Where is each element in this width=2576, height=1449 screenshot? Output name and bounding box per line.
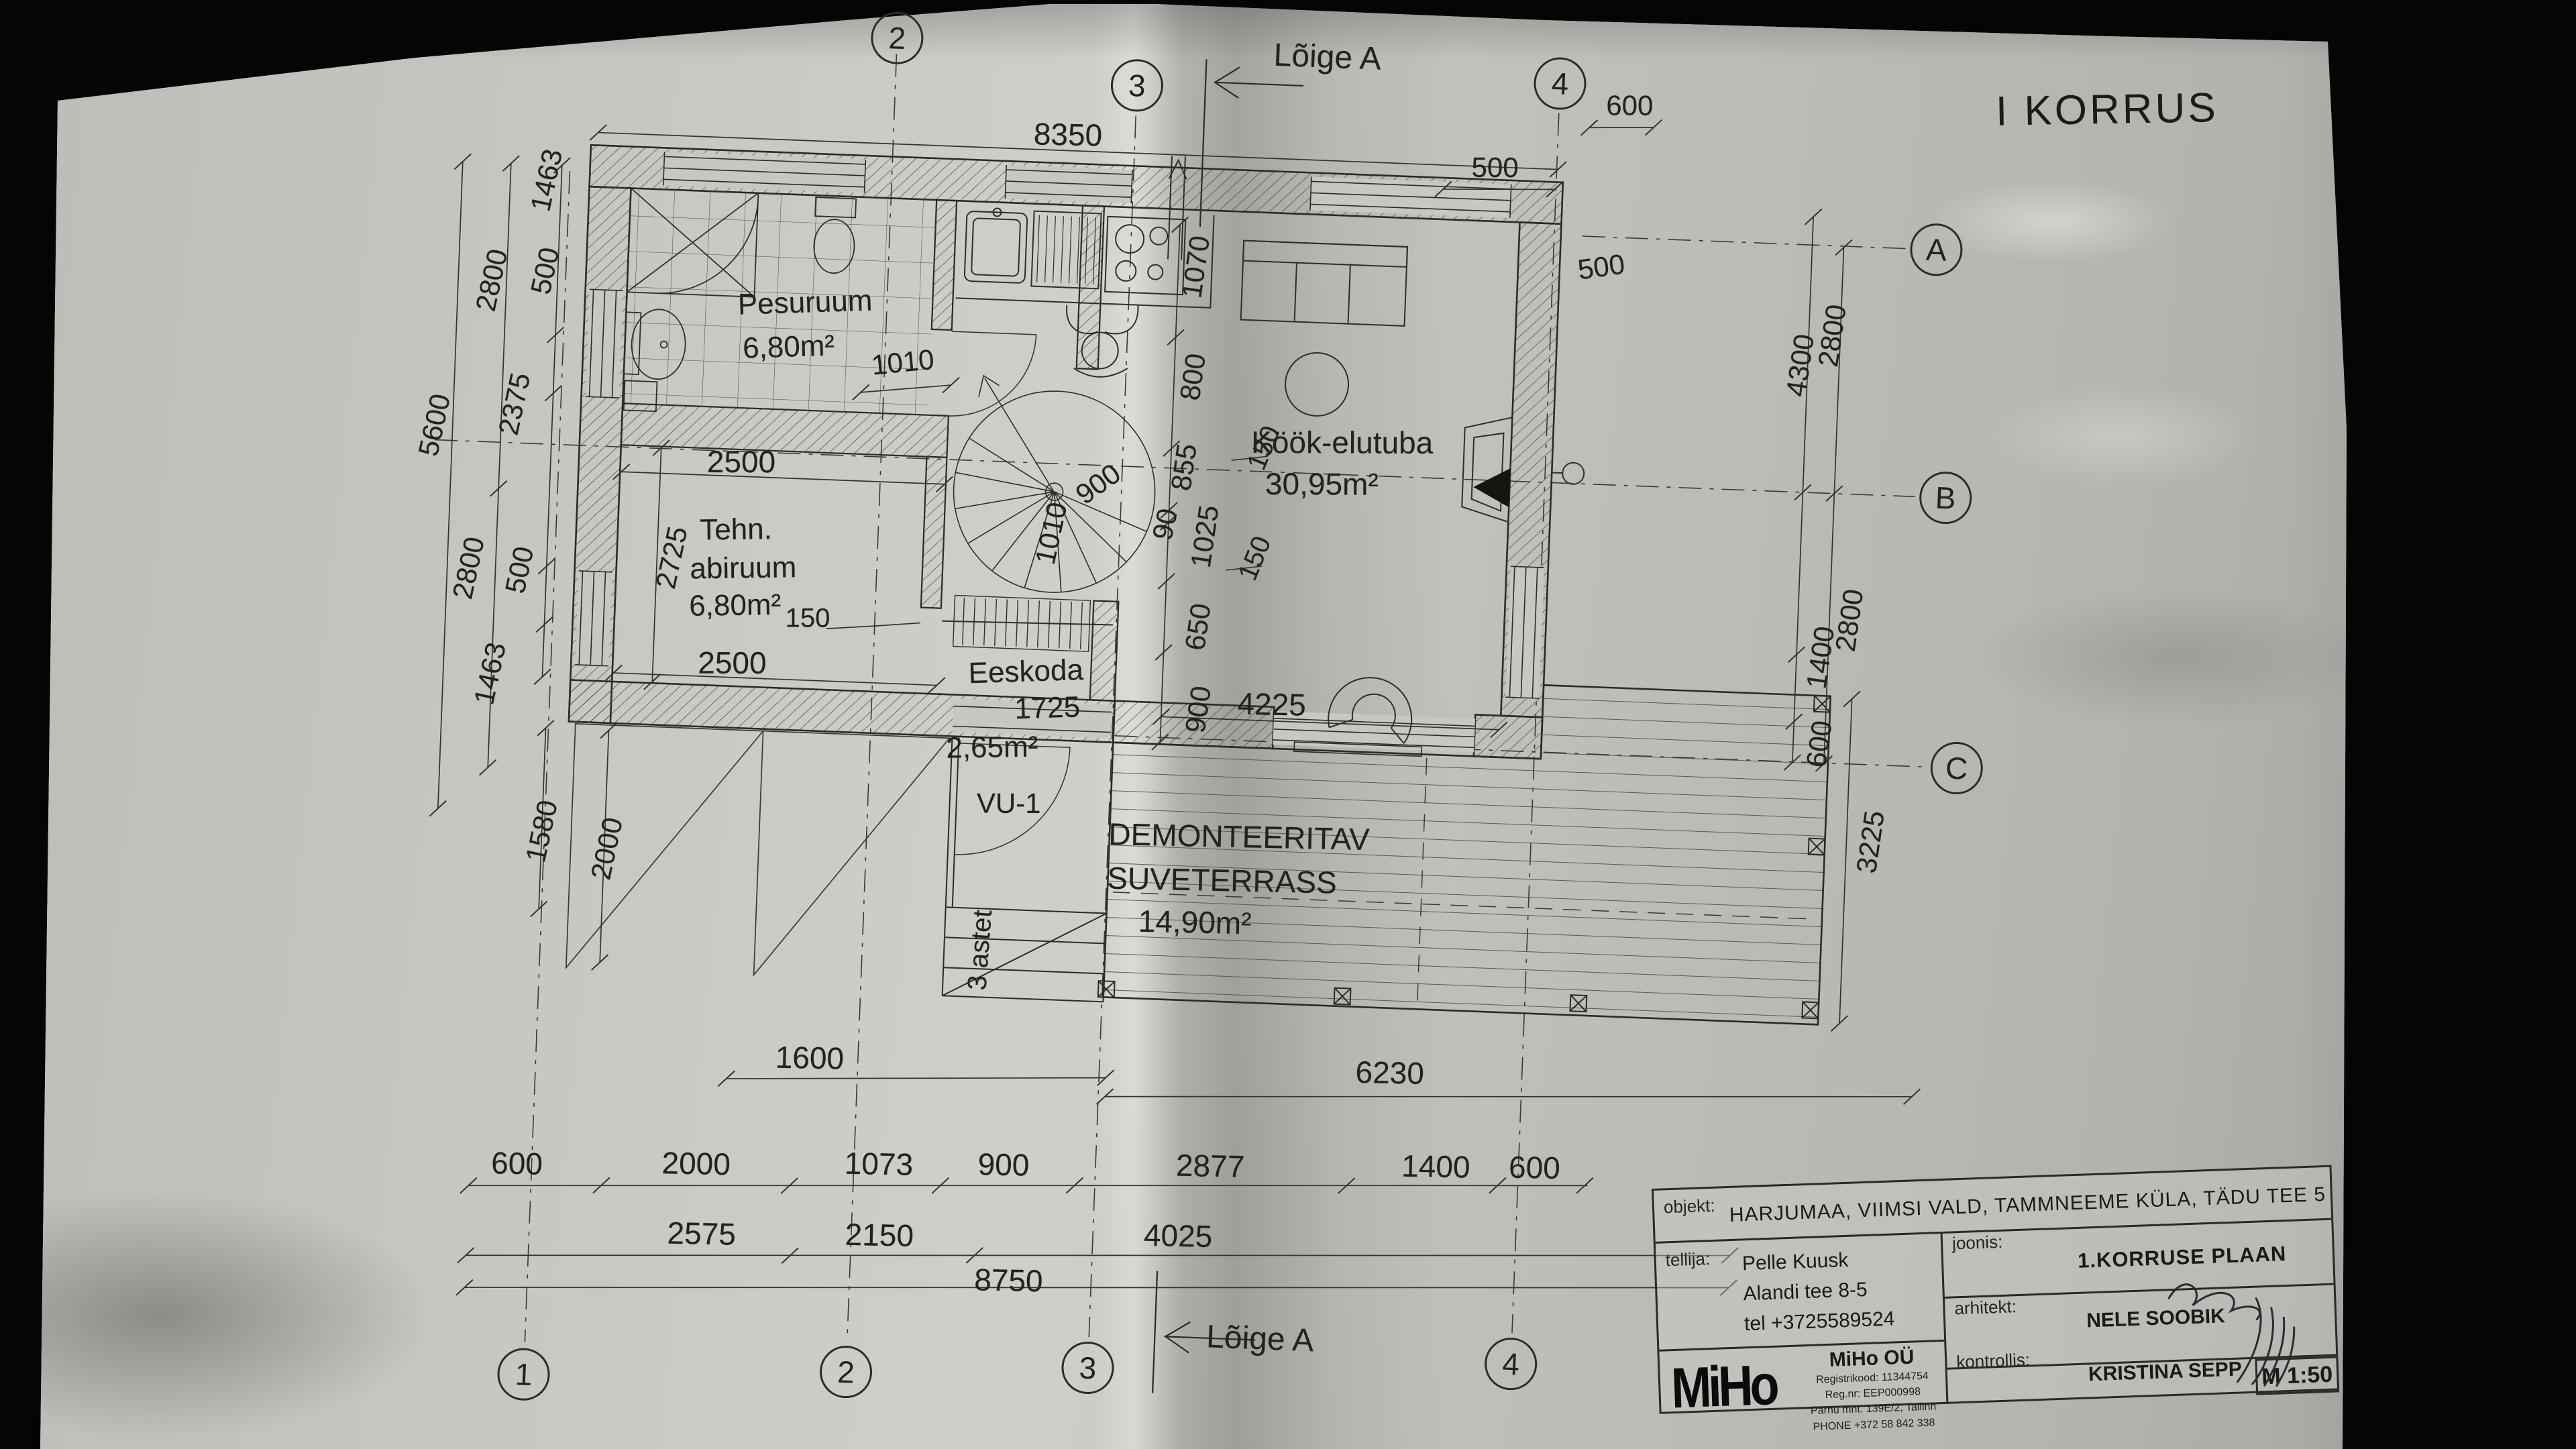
- room-label: Pesuruum: [737, 284, 873, 321]
- dimension-label: 4225: [1237, 686, 1306, 723]
- dimension-label: 600: [1509, 1148, 1561, 1186]
- dimension-label: 150: [786, 603, 830, 633]
- drawing-info-cell: joonis: 1.KORRUSE PLAAN arhitekt: NELE S…: [1943, 1220, 2338, 1404]
- objekt-label: objekt:: [1654, 1188, 1725, 1218]
- page-title: I KORRUS: [1995, 84, 2218, 136]
- dimension-label: 600: [1800, 718, 1839, 769]
- dimension-label: 800: [1174, 352, 1213, 402]
- room-label: VU-1: [977, 788, 1041, 820]
- stove: [1105, 217, 1185, 294]
- arhitekt-label: arhitekt:: [1945, 1289, 2027, 1319]
- dimension-label: 1073: [844, 1145, 913, 1183]
- room-label: abiruum: [690, 551, 797, 586]
- joonis-label: joonis:: [1942, 1224, 2012, 1254]
- client-phone: tel +3725589524: [1743, 1303, 1895, 1339]
- room-label: 6,80m²: [742, 329, 835, 366]
- dimension-label: 500: [1472, 152, 1519, 184]
- section-label-bottom: Lõige A: [1205, 1318, 1314, 1359]
- gate-swings: [566, 724, 950, 982]
- dimension-label: 650: [1179, 601, 1218, 652]
- room-label: Tehn.: [700, 513, 772, 547]
- room-label: DEMONTEERITAV: [1108, 816, 1370, 857]
- room-label: SUVETERRASS: [1107, 860, 1338, 901]
- room-label: 14,90m²: [1138, 903, 1252, 942]
- sofa: [1241, 241, 1407, 326]
- room-label: 30,95m²: [1265, 466, 1379, 502]
- room-label: 1725: [1014, 690, 1080, 726]
- dimension-label: 2575: [667, 1215, 736, 1252]
- section-label-top: Lõige A: [1273, 37, 1382, 78]
- dimension-label: 600: [1606, 89, 1653, 121]
- client-name: Pelle Kuusk: [1741, 1244, 1893, 1279]
- title-block: objekt: HARJUMAA, VIIMSI VALD, TAMMNEEME…: [1652, 1165, 2339, 1414]
- room-label: Eeskoda: [968, 653, 1084, 690]
- company-logo: MiHo: [1670, 1352, 1777, 1421]
- dimension-label: 1600: [775, 1039, 844, 1077]
- room-label: 2,65m²: [946, 731, 1038, 765]
- signature: [2154, 1259, 2326, 1399]
- room-label: 6,80m²: [689, 588, 782, 623]
- dimension-label: 4025: [1143, 1217, 1212, 1254]
- client-address: Alandi tee 8-5: [1743, 1274, 1894, 1309]
- dimension-label: 8750: [974, 1261, 1043, 1299]
- room-label: 3 astet: [962, 909, 998, 991]
- table: [1284, 352, 1350, 417]
- dimension-label: 6230: [1355, 1054, 1424, 1091]
- tellija-label: tellija:: [1656, 1242, 1720, 1271]
- photo-of-floor-plan: 8350600500500146350028002375560028005001…: [0, 0, 2576, 1449]
- company-info: MiHo OÜ Registrikood: 11344754 Reg.nr: E…: [1802, 1345, 1944, 1435]
- dimension-label: 900: [1179, 684, 1218, 735]
- dimension-label: 2500: [707, 443, 776, 480]
- dimension-label: 2000: [661, 1144, 731, 1182]
- dimension-label: 1400: [1401, 1148, 1470, 1185]
- dimension-label: 2150: [845, 1216, 914, 1254]
- dimension-label: 600: [491, 1144, 543, 1182]
- stair-treads: [941, 595, 1114, 653]
- client-cell: tellija: Pelle Kuusk Alandi tee 8-5 tel …: [1656, 1234, 1949, 1414]
- dimension-label: 2500: [698, 645, 767, 681]
- dimension-label: 500: [1576, 248, 1627, 286]
- dimension-label: 855: [1165, 441, 1203, 492]
- room-label: Köök-elutuba: [1251, 424, 1433, 461]
- dimension-label: 1010: [870, 343, 936, 382]
- dimension-label: 900: [977, 1146, 1030, 1183]
- dimension-label: 90: [1146, 506, 1184, 543]
- dimension-label: 8350: [1033, 115, 1102, 153]
- dimension-label: 2877: [1175, 1147, 1244, 1185]
